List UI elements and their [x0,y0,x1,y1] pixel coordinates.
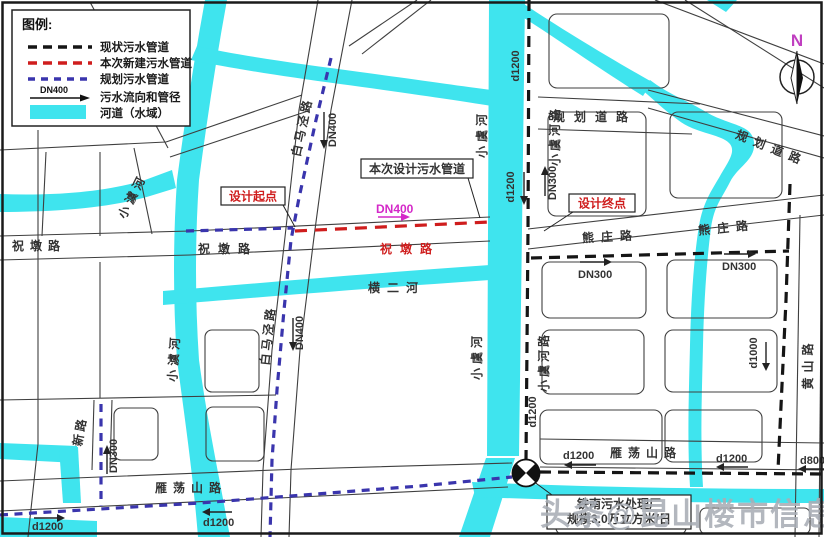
road-label-yandangshan-west: 雁荡山路 [155,480,227,495]
legend-swatch-river [30,105,86,119]
flow-arrowhead [762,363,770,371]
pipe-label-dn300-xz-west: DN300 [578,269,612,281]
road-line [349,0,417,46]
watermark: 头条@昆山楼市信息 [540,497,824,532]
road-line [0,395,276,400]
new-pipe-zhudun [295,222,490,231]
design-start-label: 设计起点 [229,189,277,204]
legend-label-new: 本次新建污水管道 [100,56,192,70]
design-pipe-callout-label: 本次设计污水管道 [369,161,465,176]
pipe-label-d1200-bottommid: d1200 [203,517,234,529]
road-label-zhudun-mid: 祝墩路 [198,241,258,256]
river-diagonal-branch [524,4,652,96]
leader-line [468,178,480,218]
pipe-label-d1000: d1000 [748,337,760,368]
road-label-zhudun-red: 祝墩路 [380,241,440,256]
road-xiongzhuang-edge [528,215,824,249]
road-line [362,0,431,54]
leader-line [283,205,295,227]
road-xinlu-edge [92,400,94,470]
road-label-guihua-horizontal: 规划道路 [553,109,637,124]
road-line [0,142,166,150]
compass: N [780,31,814,104]
road-label-baimajing-south: 白马泾路 [257,305,278,366]
river-label-xiaoyuhe-south: 小虞河 [469,332,484,380]
city-block [542,330,644,394]
pipe-label-dn400-north: DN400 [327,113,339,147]
road-label-yandangshan-east: 雁荡山路 [610,445,682,460]
river-west-horizontal [0,170,176,212]
road-yandangshan-edge [540,439,824,443]
legend-label-flow: 污水流向和管径 [100,90,181,104]
design-end-label: 设计终点 [578,196,626,211]
river-label-xiaoyuhe-north: 小虞河 [474,110,489,158]
compass-needle-white [791,51,797,104]
pipeline-planning-map: 祝墩路 祝墩路 祝墩路 白马泾路 白马泾路 DN400 DN400 横二河 小澞… [0,0,824,537]
map-canvas: 祝墩路 祝墩路 祝墩路 白马泾路 白马泾路 DN400 DN400 横二河 小澞… [0,0,824,537]
pipe-label-d1200-bottomleft: d1200 [32,521,63,533]
compass-north-label: N [791,31,803,50]
legend: 图例: 现状污水管道 本次新建污水管道 规划污水管道 DN400 污水流向和管径… [12,10,192,126]
compass-needle-black [797,51,803,104]
existing-pipe-east-vertical [778,184,790,470]
road-baimajing-edge [261,0,318,537]
city-block [114,408,158,460]
existing-pipe-yandangshan-east [540,472,824,474]
legend-label-planned: 规划污水管道 [100,72,169,86]
pipe-label-dn300-xz-east: DN300 [722,261,756,273]
city-block [665,330,777,392]
treatment-plant-symbol [513,460,540,487]
road-label-huangshan: 黄山路 [800,338,815,389]
road-label-xiaoyuhelu-south: 小虞河路 [536,332,551,392]
city-block [549,14,669,88]
legend-flow-pipe-size: DN400 [40,85,68,95]
pipe-label-dn300-xiaoyuhelu: DN300 [547,166,559,200]
road-yandangshan-edge [540,467,824,470]
road-label-xiongzhuang-west: 熊庄路 [582,227,640,245]
pipe-label-dn400-south: DN400 [294,316,306,350]
legend-label-river: 河道（水域） [100,106,169,120]
road-huangshan-edge [795,215,800,537]
leader-line [544,212,573,231]
legend-label-existing: 现状污水管道 [100,40,169,54]
road-line [42,152,46,236]
road-label-zhudun-west: 祝墩路 [12,238,66,253]
city-block [206,407,264,461]
pipe-label-d1200-ydl-east: d1200 [716,453,747,465]
legend-title: 图例: [22,17,52,32]
road-label-xinlu: 新路 [70,415,90,447]
pipe-label-dn400-new: DN400 [376,202,414,216]
pipe-label-d1200-river: d1200 [510,50,522,81]
river-hengerhe [163,265,490,305]
road-line [685,0,824,88]
flow-arrowhead [604,258,612,266]
pipe-label-d1200-mid: d1200 [505,171,517,202]
pipe-label-dn300-xinlu: DN300 [108,439,120,473]
existing-pipe-trunk-vertical [526,0,529,460]
pipe-label-d1200-south: d1200 [527,396,539,427]
canal-bottomleft-v [59,447,81,503]
river-label-hengerhe: 横二河 [368,280,425,295]
city-block [205,330,259,392]
pipe-label-d1200-ydl-west: d1200 [563,450,594,462]
